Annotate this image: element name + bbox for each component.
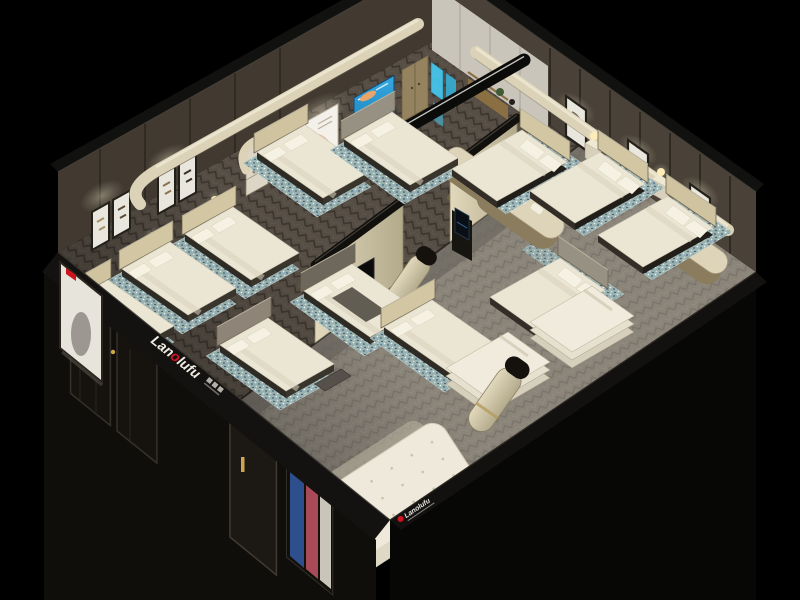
render-canvas: Lanolufu Lanolufu	[0, 0, 800, 600]
door-handle	[111, 350, 115, 354]
showroom-render: Lanolufu Lanolufu	[0, 0, 800, 600]
door-handle	[241, 457, 245, 472]
plant	[496, 88, 504, 96]
